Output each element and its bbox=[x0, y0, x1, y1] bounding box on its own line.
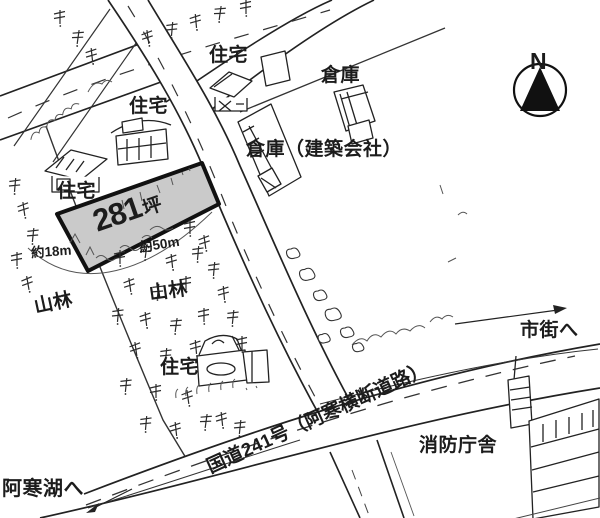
tree-icon bbox=[189, 14, 201, 32]
warehouse-company-label: 倉庫（建築会社） bbox=[246, 140, 402, 159]
tree-icon bbox=[240, 0, 251, 17]
arrow-to-city bbox=[553, 305, 567, 314]
tree-icon bbox=[71, 29, 84, 47]
tree-icon bbox=[199, 413, 212, 431]
tree-icon bbox=[17, 201, 30, 219]
north-south-road-lower bbox=[330, 440, 414, 518]
tree-icon bbox=[198, 308, 209, 325]
bush-icon bbox=[341, 327, 354, 338]
house-icon bbox=[111, 118, 171, 165]
residential-label-2: 住宅 bbox=[129, 97, 168, 116]
bush-icon bbox=[314, 290, 327, 301]
to-lake-akan-label: 阿寒湖へ bbox=[2, 479, 84, 499]
residential-label-1: 住宅 bbox=[209, 46, 248, 65]
tree-icon bbox=[213, 5, 226, 23]
bush-icon bbox=[352, 343, 363, 352]
tree-icon bbox=[8, 178, 20, 196]
tree-icon bbox=[123, 277, 136, 295]
tree-icon bbox=[169, 422, 182, 440]
tree-icon bbox=[21, 275, 35, 294]
plot-frontage-label: 約18m bbox=[31, 244, 72, 260]
tree-icon bbox=[233, 419, 246, 437]
forest-label-2: 山林 bbox=[148, 279, 189, 303]
tree-icon bbox=[191, 246, 203, 264]
tree-icon bbox=[181, 389, 194, 407]
residential-label-3: 住宅 bbox=[57, 182, 96, 201]
tree-icon bbox=[54, 10, 65, 27]
bush-icon bbox=[287, 248, 300, 259]
tree-icon bbox=[165, 254, 178, 272]
bush-icon bbox=[318, 334, 330, 344]
bush-icon bbox=[325, 308, 341, 321]
to-city-label: 市街へ bbox=[520, 321, 579, 340]
tree-icon bbox=[215, 412, 228, 430]
fire-station-label: 消防庁舎 bbox=[419, 436, 497, 455]
compass-north-label: N bbox=[530, 50, 547, 73]
residential-label-4: 住宅 bbox=[160, 358, 199, 377]
tree-icon bbox=[226, 309, 239, 327]
tree-icon bbox=[119, 377, 132, 395]
tree-icon bbox=[217, 286, 229, 304]
tree-icon bbox=[198, 234, 211, 252]
tree-icon bbox=[11, 252, 22, 269]
tree-icon bbox=[207, 262, 219, 280]
house-icon bbox=[197, 335, 269, 386]
hand-drawn-site-map: N 住宅 住宅 住宅 住宅 倉庫 倉庫（建築会社） 山林 山林 消防庁舎 市街へ… bbox=[0, 0, 600, 518]
tree-icon bbox=[150, 384, 161, 401]
tree-icon bbox=[26, 227, 39, 245]
tree-icon bbox=[169, 317, 182, 335]
tree-icon bbox=[139, 416, 151, 434]
building-outline bbox=[261, 51, 290, 86]
bush-icon bbox=[300, 268, 315, 280]
warehouse-icon bbox=[334, 85, 375, 144]
map-drawing bbox=[0, 0, 600, 518]
tree-icon bbox=[139, 312, 152, 330]
warehouse-label: 倉庫 bbox=[321, 66, 360, 85]
